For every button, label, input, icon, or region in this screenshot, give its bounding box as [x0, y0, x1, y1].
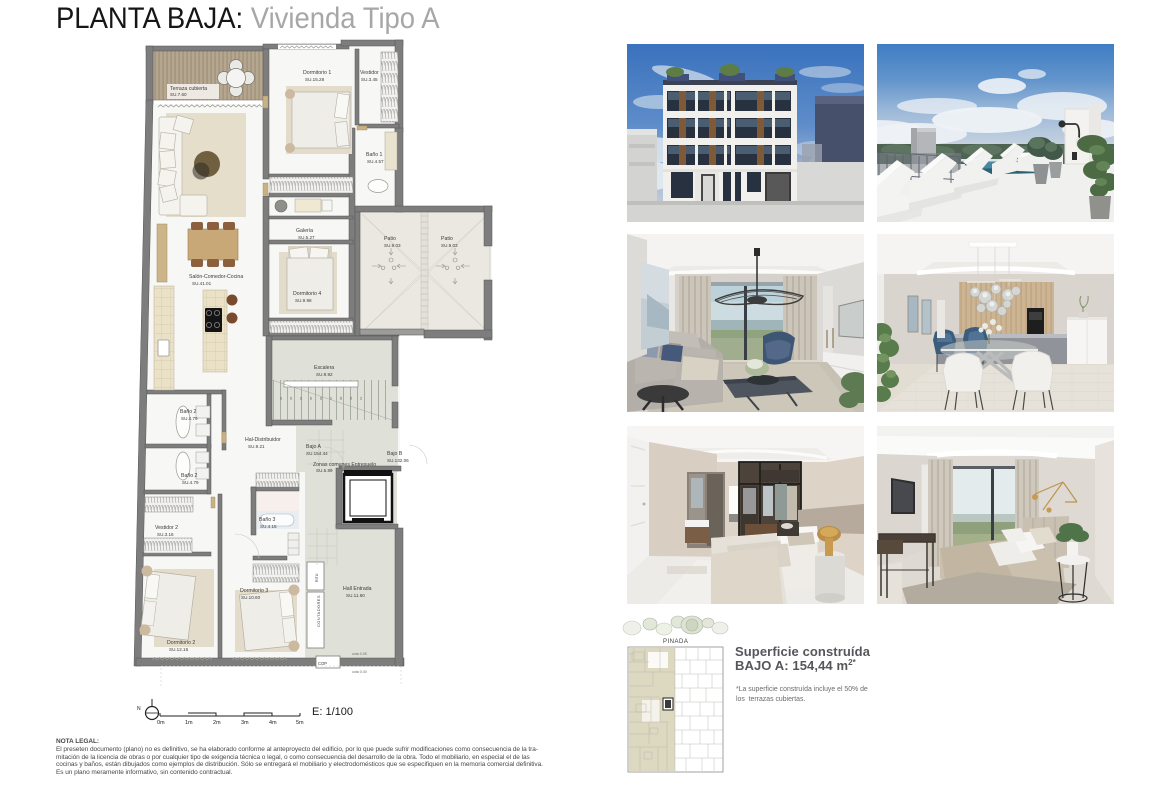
svg-text:RITU: RITU: [315, 573, 319, 582]
svg-text:Dormitorio 2: Dormitorio 2: [167, 640, 195, 646]
svg-text:CONTADORES: CONTADORES: [316, 595, 321, 627]
svg-text:SU.4.79: SU.4.79: [182, 480, 199, 485]
svg-text:03: 03: [289, 396, 293, 400]
svg-text:SU.7.60: SU.7.60: [170, 92, 187, 97]
svg-text:SU.4.15: SU.4.15: [260, 524, 277, 529]
svg-text:02: 02: [279, 396, 283, 400]
svg-text:Patio: Patio: [384, 236, 396, 242]
svg-text:Baño 3: Baño 3: [259, 517, 276, 523]
svg-text:3m: 3m: [241, 720, 249, 726]
svg-text:Vestidor: Vestidor: [360, 70, 379, 76]
svg-text:Hall Entrada: Hall Entrada: [343, 586, 372, 592]
svg-text:SU.41.01: SU.41.01: [192, 281, 212, 286]
svg-text:Baño 2: Baño 2: [180, 409, 197, 415]
svg-text:Dormitorio 3: Dormitorio 3: [240, 588, 268, 594]
svg-text:Baño 1: Baño 1: [366, 152, 383, 158]
svg-text:1m: 1m: [185, 720, 193, 726]
svg-text:04: 04: [299, 396, 303, 400]
svg-text:2m: 2m: [213, 720, 221, 726]
svg-text:5m: 5m: [296, 720, 304, 726]
svg-text:SU.9.21: SU.9.21: [248, 444, 265, 449]
svg-text:08: 08: [339, 396, 343, 400]
svg-text:Bajo A: Bajo A: [306, 444, 322, 450]
svg-text:SU.9.03: SU.9.03: [441, 243, 458, 248]
svg-text:SU.11.60: SU.11.60: [346, 593, 365, 598]
svg-text:09: 09: [349, 396, 353, 400]
svg-text:06: 06: [319, 396, 323, 400]
svg-text:Galería: Galería: [296, 228, 313, 234]
svg-text:SU.4.79: SU.4.79: [181, 416, 198, 421]
svg-text:SU.9.03: SU.9.03: [384, 243, 401, 248]
svg-text:Vestidor 2: Vestidor 2: [155, 525, 178, 531]
svg-text:Dormitorio 4: Dormitorio 4: [293, 291, 321, 297]
svg-text:Bajo B: Bajo B: [387, 451, 403, 457]
svg-text:Baño 2: Baño 2: [181, 473, 198, 479]
svg-text:05: 05: [309, 396, 313, 400]
svg-text:cota 0.05: cota 0.05: [352, 652, 367, 656]
svg-text:SU.5.89: SU.5.89: [316, 468, 333, 473]
svg-text:4m: 4m: [269, 720, 277, 726]
svg-text:COP: COP: [318, 661, 327, 666]
svg-text:PINADA: PINADA: [663, 639, 688, 645]
svg-text:SU.15.28: SU.15.28: [305, 77, 325, 82]
svg-text:SU.9.92: SU.9.92: [316, 372, 333, 377]
svg-text:Hal-Distribuidor: Hal-Distribuidor: [245, 437, 281, 443]
svg-text:07: 07: [329, 396, 333, 400]
svg-text:SU.154.44: SU.154.44: [306, 451, 328, 456]
svg-text:SU.10.60: SU.10.60: [241, 595, 261, 600]
svg-text:SU.9.98: SU.9.98: [295, 298, 312, 303]
svg-text:SU.3.16: SU.3.16: [157, 532, 174, 537]
svg-text:cota 0.00: cota 0.00: [352, 670, 367, 674]
svg-text:0m: 0m: [157, 720, 165, 726]
svg-text:SU.132.06: SU.132.06: [387, 458, 409, 463]
svg-text:SU.5.27: SU.5.27: [298, 235, 315, 240]
svg-text:SU.3.45: SU.3.45: [361, 77, 378, 82]
svg-text:SU.12.16: SU.12.16: [169, 647, 189, 652]
svg-text:Dormitorio 1: Dormitorio 1: [303, 70, 331, 76]
svg-text:SU.4.57: SU.4.57: [367, 159, 384, 164]
svg-text:10: 10: [359, 396, 363, 400]
svg-text:Escalera: Escalera: [314, 365, 334, 371]
svg-text:N: N: [137, 706, 141, 712]
svg-text:Patio: Patio: [441, 236, 453, 242]
svg-text:Salón-Comedor-Cocina: Salón-Comedor-Cocina: [189, 274, 243, 280]
